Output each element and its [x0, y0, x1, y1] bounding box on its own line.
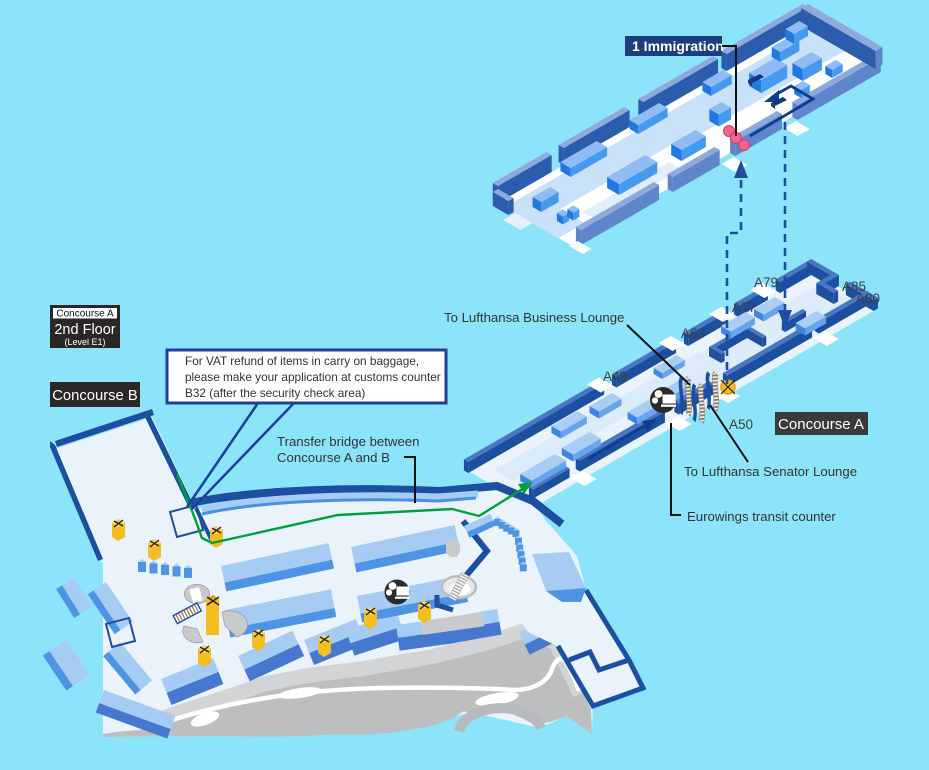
svg-text:1 Immigration: 1 Immigration: [632, 38, 724, 54]
svg-text:Transfer bridge between: Transfer bridge between: [277, 434, 419, 449]
svg-text:A50: A50: [729, 417, 753, 432]
svg-text:A77: A77: [732, 300, 756, 315]
svg-text:B32 (after the security check: B32 (after the security check area): [185, 386, 365, 400]
svg-text:A63: A63: [681, 326, 705, 341]
svg-text:A80: A80: [856, 291, 880, 306]
svg-text:Concourse A: Concourse A: [56, 309, 114, 320]
svg-text:To Lufthansa Senator Lounge: To Lufthansa Senator Lounge: [684, 464, 857, 479]
svg-text:2nd Floor: 2nd Floor: [54, 322, 115, 338]
svg-text:For VAT refund of items in car: For VAT refund of items in carry on bagg…: [185, 354, 419, 368]
svg-text:Eurowings transit counter: Eurowings transit counter: [687, 509, 836, 524]
svg-text:(Level E1): (Level E1): [64, 337, 105, 347]
svg-text:Concourse A: Concourse A: [778, 416, 864, 433]
svg-text:Concourse A and B: Concourse A and B: [277, 450, 390, 465]
svg-text:please make your application a: please make your application at customs …: [185, 370, 441, 384]
svg-text:Concourse B: Concourse B: [52, 388, 138, 404]
svg-text:A49: A49: [603, 369, 627, 384]
svg-text:A79: A79: [754, 275, 778, 290]
svg-text:To Lufthansa Business Lounge: To Lufthansa Business Lounge: [444, 310, 624, 325]
